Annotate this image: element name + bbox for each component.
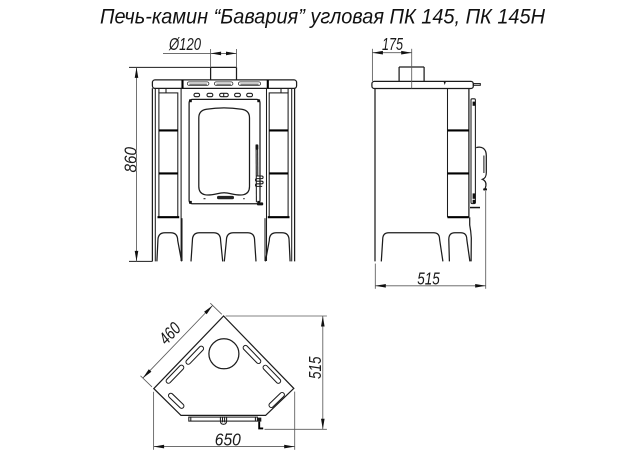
svg-text:175: 175 [382,34,403,54]
svg-text:515: 515 [417,269,440,289]
svg-text:515: 515 [305,356,325,379]
svg-text:Ø120: Ø120 [168,34,201,54]
svg-text:Печь-камин “Бавария” угловая П: Печь-камин “Бавария” угловая ПК 145, ПК … [100,5,545,29]
svg-text:860: 860 [120,147,140,173]
svg-text:650: 650 [215,429,241,449]
